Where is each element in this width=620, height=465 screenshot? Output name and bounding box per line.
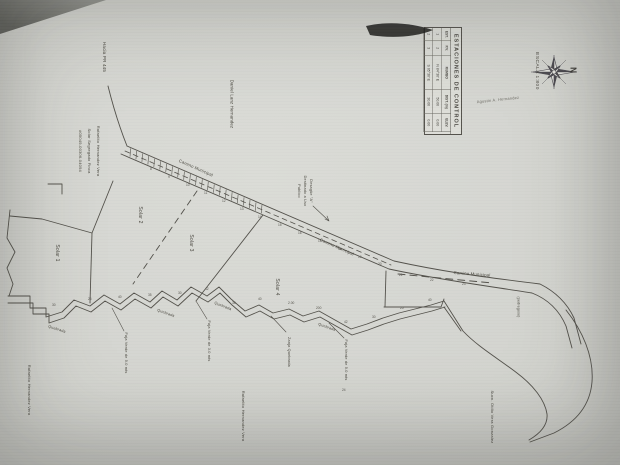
- road-hatch-tick: [148, 156, 149, 164]
- north-label: N: [569, 67, 578, 73]
- boundary-tick-label: 35: [148, 293, 152, 297]
- left-edge-boundary: [7, 210, 15, 296]
- parcel-label-solar4: Solar 4: [274, 278, 280, 295]
- control-stations-table: ESTACIONES DE CONTROL EST.P.V.RUMBODIST.…: [424, 27, 462, 135]
- boundary-tick-label: 40: [118, 295, 122, 299]
- creek-lower-line: [8, 293, 445, 335]
- table-cell: S 05°30' E: [424, 56, 433, 90]
- boundary-tick-label: 30: [178, 291, 182, 295]
- parcel-label-solar2: Solar 2: [137, 206, 143, 223]
- road-hatch-tick: [220, 187, 221, 195]
- road-destination-label: Hacia PR 445: [101, 42, 107, 72]
- boundary-tick-label: 200: [316, 306, 322, 310]
- table-header-cell: DIST. (m): [442, 90, 451, 114]
- green-strip-3m-label: Faja Verde de 3.0 mts: [207, 321, 212, 362]
- boundary-tick-label: 10: [186, 183, 190, 187]
- road-hatch-tick: [231, 192, 232, 200]
- road-hatch-tick: [255, 203, 256, 211]
- boundary-tick-label: 42: [205, 287, 209, 291]
- road-hatch-tick: [160, 161, 161, 169]
- parcel-label-solar3: Solar 3: [188, 234, 194, 251]
- easement-label-line3: Publico: [297, 184, 302, 198]
- owner-catastro-label: #05049-00306-04094: [78, 130, 83, 172]
- boundary-tick-label: 40: [258, 297, 262, 301]
- road-hatching: [130, 149, 262, 214]
- survey-drawing: 8910111213141516171819202122233025403530…: [0, 0, 620, 465]
- table-cell: 0.00: [433, 114, 442, 132]
- boundary-tick-label: 30: [52, 303, 56, 307]
- boundary-tick-label: 42: [344, 320, 348, 324]
- solar1-solar2-divider: [90, 181, 113, 303]
- boundary-tick-label: 11: [204, 191, 208, 195]
- solar1-top-boundary: [10, 216, 92, 233]
- table-cell: 1: [433, 28, 442, 41]
- road-hatch-tick: [184, 172, 185, 180]
- road-hatch-tick: [136, 151, 137, 159]
- desague-leader: [313, 206, 329, 221]
- ditch-label: Zanja Quebrada: [287, 337, 292, 367]
- table-header-cell: ELEV.: [442, 114, 451, 132]
- table-cell: 2: [424, 28, 433, 41]
- boundary-tick-labels: 8910111213141516171819202122233025403530…: [52, 167, 466, 392]
- neighbor-bottom-center-label: Rafaelito Hernandez Vera: [241, 391, 246, 442]
- road-hatch-tick: [172, 167, 173, 175]
- boundary-tick-label: 38: [232, 301, 236, 305]
- boundary-tick-label: 22: [430, 278, 434, 282]
- zanja-leader: [271, 316, 286, 332]
- easement-label-line2: Destinado a Uso: [303, 176, 308, 207]
- boundary-tick-label: 25: [400, 306, 404, 310]
- corner-mark: [48, 184, 62, 194]
- road-hatch-tick: [243, 197, 244, 205]
- owner-lot-label: Solar Segregado Finca: [87, 128, 92, 173]
- table-header-cell: EST.: [442, 28, 451, 41]
- table-cell: 2: [433, 41, 442, 56]
- road-hatch-tick: [214, 185, 215, 193]
- boundary-tick-label: 8: [150, 167, 152, 171]
- boundary-tick-label: 24: [342, 388, 346, 392]
- easement-label-line1: Desagüe "A": [309, 179, 314, 202]
- neighbor-top-label: Daniel Lanz Hernandez: [229, 80, 234, 129]
- table-cell: N 84°30' E: [433, 56, 442, 90]
- boundary-tick-label: 21: [399, 273, 403, 277]
- road-hatch-tick: [249, 200, 250, 208]
- faja5a-leader: [112, 308, 124, 331]
- boundary-tick-label: 40: [428, 298, 432, 302]
- road-hatch-tick: [190, 174, 191, 182]
- southeast-outer-boundary: [530, 310, 592, 442]
- faja3-leader: [196, 301, 207, 319]
- boundary-tick-label: 13: [240, 207, 244, 211]
- table-cell: 3: [424, 41, 433, 56]
- road-hatch-tick: [166, 164, 167, 172]
- boundary-tick-label: 20: [378, 262, 382, 266]
- road-hatch-tick: [225, 190, 226, 198]
- southeast-inner-boundary: [444, 301, 547, 440]
- road-hatch-tick: [208, 182, 209, 190]
- road-hatch-tick: [142, 154, 143, 162]
- table-cell: 0.00: [424, 114, 433, 132]
- survey-plat-photo: 8910111213141516171819202122233025403530…: [0, 0, 620, 465]
- road-upper-edge: [127, 146, 581, 344]
- road-hatch-tick: [178, 169, 179, 177]
- table-cell: 30.00: [424, 90, 433, 114]
- neighbor-bottom-left-label: Rafaelito Hernandez Vera: [27, 365, 32, 416]
- road-hatch-tick: [237, 195, 238, 203]
- boundary-tick-label: 9: [168, 175, 170, 179]
- table-cell: 50.00: [433, 90, 442, 114]
- table-title: ESTACIONES DE CONTROL: [451, 28, 462, 134]
- table-grid: EST.P.V.RUMBODIST. (m)ELEV.12N 84°30' E5…: [424, 28, 451, 134]
- road-hatch-tick: [154, 159, 155, 167]
- owner-name-label: Rafaelito Hernandez Vera: [96, 126, 101, 177]
- road-hatch-tick: [196, 177, 197, 185]
- green-strip-5m-label: Faja Verde de 5.0 mts: [344, 340, 349, 381]
- boundary-tick-label: 14: [258, 215, 262, 219]
- boundary-tick-label: 2.00: [288, 301, 295, 305]
- boundary-tick-label: 25: [88, 297, 92, 301]
- boundary-tick-label: 23: [462, 282, 466, 286]
- boundary-tick-label: 19: [358, 255, 362, 259]
- boundary-tick-label: 16: [298, 231, 302, 235]
- green-strip-5m-label: Faja Verde de 5.0 mts: [124, 333, 129, 374]
- table-header-cell: RUMBO: [442, 56, 451, 90]
- road-approach-line: [108, 86, 127, 146]
- neighbor-bottom-right-label: Sucn. Otilio Vera Gonzalez: [490, 390, 495, 443]
- boundary-tick-label: 15: [278, 223, 282, 227]
- boundary-tick-label: 12: [222, 199, 226, 203]
- road-hatch-tick: [261, 205, 262, 213]
- terrain-note-label: (pedregoso): [516, 296, 520, 317]
- road-hatch-tick: [202, 179, 203, 187]
- table-header-cell: P.V.: [442, 41, 451, 56]
- road-hatch-tick: [130, 149, 131, 157]
- road-centerline-dashed: [125, 151, 391, 265]
- boundary-tick-label: 30: [372, 315, 376, 319]
- parcel-label-solar1: Solar 1: [54, 244, 60, 261]
- scale-label: ESCALA 1:800: [534, 52, 540, 90]
